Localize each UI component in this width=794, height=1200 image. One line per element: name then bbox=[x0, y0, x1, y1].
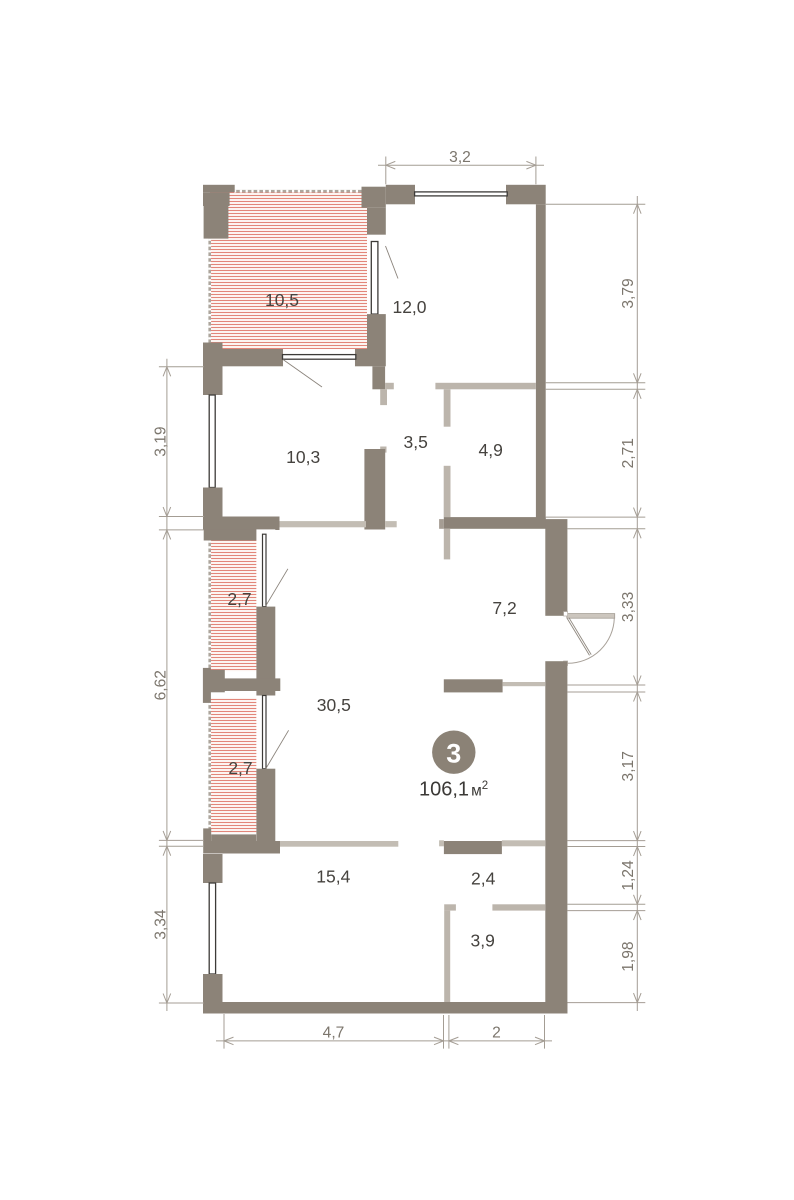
svg-text:1,98: 1,98 bbox=[620, 941, 637, 971]
svg-text:15,4: 15,4 bbox=[316, 866, 350, 886]
svg-text:2: 2 bbox=[492, 1025, 501, 1042]
svg-text:2,7: 2,7 bbox=[227, 589, 251, 609]
svg-text:7,2: 7,2 bbox=[492, 598, 516, 618]
svg-text:3,5: 3,5 bbox=[404, 432, 428, 452]
svg-text:106,1м2: 106,1м2 bbox=[419, 778, 488, 800]
svg-text:3,2: 3,2 bbox=[449, 149, 471, 166]
svg-text:30,5: 30,5 bbox=[317, 695, 351, 715]
svg-text:2,7: 2,7 bbox=[228, 758, 252, 778]
svg-text:6,62: 6,62 bbox=[152, 670, 169, 700]
svg-text:2,4: 2,4 bbox=[471, 868, 496, 888]
svg-text:3,33: 3,33 bbox=[620, 592, 637, 622]
svg-text:3,79: 3,79 bbox=[620, 278, 637, 308]
svg-text:3,34: 3,34 bbox=[152, 909, 169, 940]
svg-text:1,24: 1,24 bbox=[620, 860, 637, 891]
svg-text:10,3: 10,3 bbox=[286, 447, 320, 467]
svg-text:3,19: 3,19 bbox=[152, 426, 169, 456]
svg-text:4,7: 4,7 bbox=[323, 1025, 345, 1042]
svg-text:10,5: 10,5 bbox=[265, 290, 299, 310]
svg-text:2,71: 2,71 bbox=[620, 438, 637, 468]
svg-text:4,9: 4,9 bbox=[479, 440, 503, 460]
svg-text:3: 3 bbox=[446, 739, 461, 769]
svg-text:12,0: 12,0 bbox=[392, 297, 426, 317]
svg-text:3,17: 3,17 bbox=[620, 751, 637, 781]
svg-text:3,9: 3,9 bbox=[471, 931, 495, 951]
